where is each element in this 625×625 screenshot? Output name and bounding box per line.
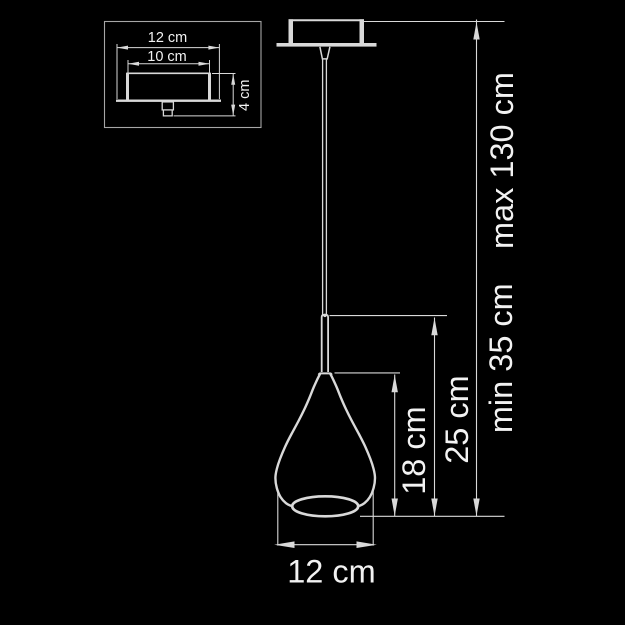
svg-text:10 cm: 10 cm (147, 49, 187, 65)
svg-text:min 35 cm: min 35 cm (483, 283, 519, 433)
svg-text:18 cm: 18 cm (396, 406, 432, 495)
svg-text:4 cm: 4 cm (237, 80, 253, 111)
svg-text:12 cm: 12 cm (148, 30, 188, 46)
svg-text:25 cm: 25 cm (439, 375, 475, 464)
svg-text:max 130 cm: max 130 cm (484, 72, 520, 249)
svg-text:12 cm: 12 cm (287, 554, 376, 590)
